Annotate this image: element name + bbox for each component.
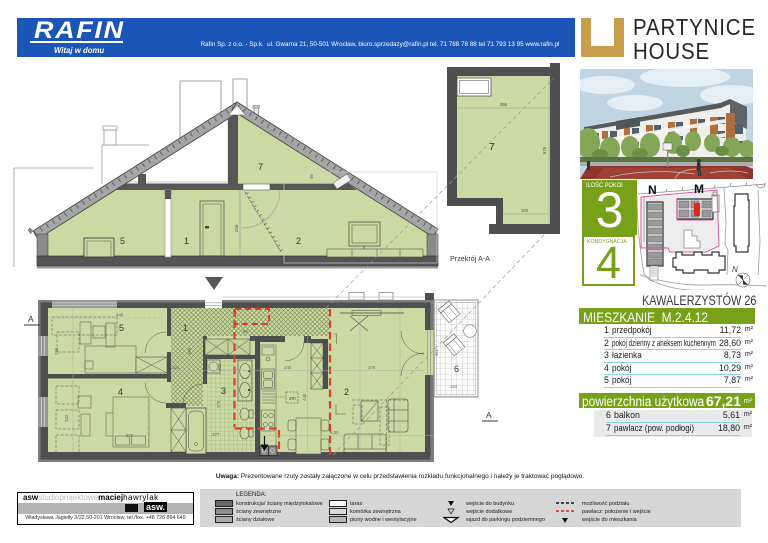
svg-text:368: 368 xyxy=(500,102,508,107)
svg-text:1: 1 xyxy=(184,236,189,246)
svg-text:202: 202 xyxy=(217,363,222,371)
svg-text:6: 6 xyxy=(454,364,459,374)
svg-text:258: 258 xyxy=(54,347,59,355)
svg-text:2: 2 xyxy=(296,236,301,246)
svg-text:121: 121 xyxy=(172,365,180,370)
svg-text:1: 1 xyxy=(183,323,188,333)
svg-text:440: 440 xyxy=(302,393,307,401)
svg-text:3: 3 xyxy=(221,386,226,396)
svg-text:M: M xyxy=(694,182,704,196)
svg-text:5: 5 xyxy=(119,323,124,333)
svg-text:96: 96 xyxy=(243,329,248,334)
svg-text:241: 241 xyxy=(234,147,239,155)
svg-text:376: 376 xyxy=(368,365,376,370)
svg-text:4: 4 xyxy=(118,387,123,397)
svg-text:A: A xyxy=(28,314,34,324)
svg-text:Przekrój A-A: Przekrój A-A xyxy=(450,254,490,263)
svg-text:154: 154 xyxy=(450,384,458,389)
svg-text:193: 193 xyxy=(521,208,529,213)
svg-text:N: N xyxy=(648,183,657,197)
svg-text:7: 7 xyxy=(258,162,263,172)
svg-text:509: 509 xyxy=(126,433,134,438)
svg-text:6,30: 6,30 xyxy=(330,430,339,435)
svg-text:2: 2 xyxy=(344,387,349,397)
svg-text:578: 578 xyxy=(542,146,547,154)
svg-text:277: 277 xyxy=(212,432,220,437)
svg-text:332: 332 xyxy=(64,414,69,422)
svg-text:360: 360 xyxy=(187,347,192,355)
svg-text:A: A xyxy=(486,410,492,420)
svg-text:375: 375 xyxy=(216,400,221,408)
svg-text:256: 256 xyxy=(234,224,239,232)
svg-text:240: 240 xyxy=(284,365,292,370)
svg-text:449: 449 xyxy=(116,313,124,318)
svg-text:45: 45 xyxy=(309,174,314,179)
svg-text:N: N xyxy=(732,265,738,274)
svg-text:zm: zm xyxy=(289,396,296,402)
svg-text:5: 5 xyxy=(120,236,125,246)
svg-text:361: 361 xyxy=(434,348,439,356)
